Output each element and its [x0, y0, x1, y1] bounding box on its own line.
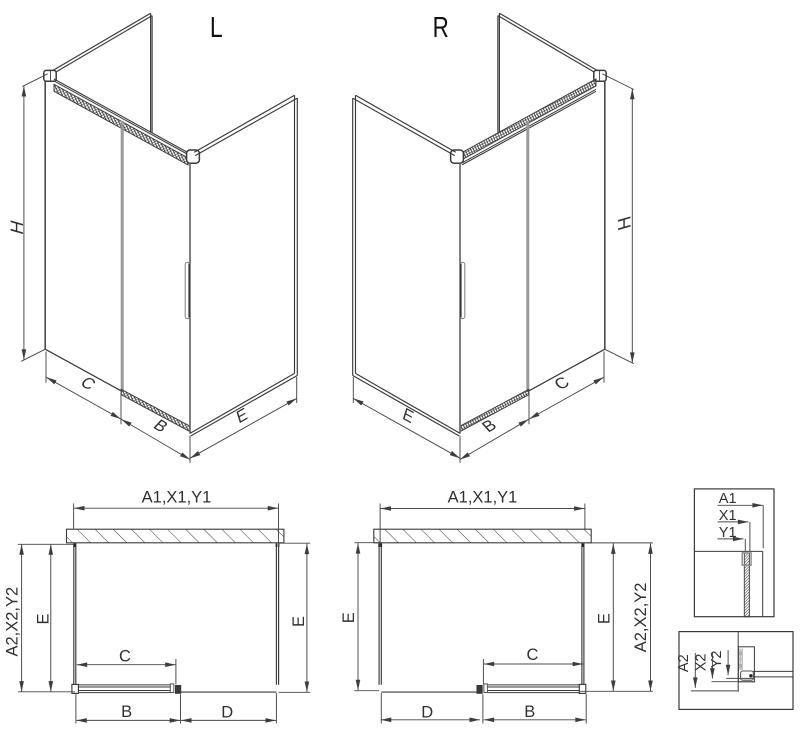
svg-text:X2: X2 [694, 654, 710, 672]
svg-text:B: B [524, 703, 535, 721]
svg-text:E: E [340, 612, 358, 623]
svg-text:R: R [433, 12, 449, 44]
svg-text:E: E [290, 616, 308, 627]
svg-text:A1,X1,Y1: A1,X1,Y1 [448, 489, 518, 507]
svg-text:A2: A2 [676, 654, 692, 672]
svg-text:C: C [77, 373, 100, 393]
svg-text:B: B [121, 703, 132, 721]
svg-text:D: D [221, 704, 233, 722]
svg-text:E: E [35, 613, 53, 624]
svg-text:H: H [614, 214, 635, 233]
svg-text:A2,X2,Y2: A2,X2,Y2 [632, 583, 650, 653]
svg-text:E: E [401, 404, 416, 428]
svg-text:B: B [478, 416, 500, 436]
svg-text:A1: A1 [719, 491, 737, 507]
svg-text:C: C [527, 646, 539, 664]
svg-text:A1,X1,Y1: A1,X1,Y1 [142, 489, 212, 507]
svg-text:A2,X2,Y2: A2,X2,Y2 [3, 587, 21, 657]
svg-text:B: B [150, 416, 172, 436]
svg-text:E: E [234, 404, 249, 428]
svg-text:C: C [550, 373, 573, 393]
svg-text:D: D [421, 704, 433, 722]
svg-text:Y2: Y2 [709, 651, 725, 669]
svg-text:C: C [119, 648, 131, 666]
svg-text:L: L [210, 12, 223, 44]
svg-text:E: E [595, 613, 613, 624]
